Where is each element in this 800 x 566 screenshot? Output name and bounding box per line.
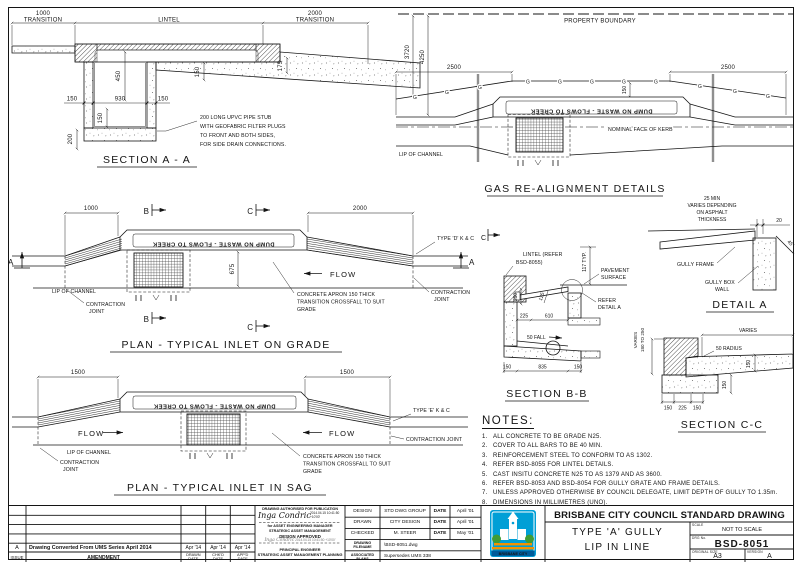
radius-label: 50 RADIUS: [716, 346, 743, 352]
dim-150-left: 150: [503, 365, 512, 371]
outlet-pipe-top: [568, 318, 600, 325]
drawing-sheet: 1000 TRANSITION LINTEL 2000 TRANSITION 4…: [0, 0, 800, 566]
svg-text:JOINT: JOINT: [63, 467, 79, 473]
section-marker-c: C: [481, 235, 486, 242]
note-item: 6.REFER BSD-8053 AND BSD-8054 FOR GULLY …: [482, 480, 732, 489]
section-marker-c-bottom: C: [247, 323, 253, 332]
gully-box-wall-label: GULLY BOX: [705, 280, 735, 286]
logo-text: BRISBANE CITY: [499, 552, 528, 556]
svg-text:G: G: [622, 80, 626, 86]
plan-on-grade-drawing: 1000 2000 B C B C A A DUMP NO WASTE - FL…: [8, 204, 475, 352]
svg-text:WALL: WALL: [715, 287, 729, 293]
drg-no-value: BSD-8051: [690, 539, 794, 550]
note-item: 5.CAST INSITU CONCRETE N25 TO AS 1379 AN…: [482, 471, 732, 480]
dim-225: 225: [520, 314, 529, 320]
for-role-line2: STRATEGIC ASSET MANAGEMENT: [255, 529, 345, 533]
dim-150-floor: 150: [98, 112, 104, 123]
property-boundary-label: PROPERTY BOUNDARY: [564, 19, 636, 25]
note-item: 7.UNLESS APPROVED OTHERWISE BY COUNCIL D…: [482, 489, 732, 498]
plan-on-grade-title: PLAN - TYPICAL INLET ON GRADE: [121, 339, 330, 351]
checked-value: M. STEER: [380, 531, 430, 536]
lip-of-channel-label: LIP OF CHANNEL: [67, 450, 111, 456]
appd-date-header: APP'DDATE: [230, 553, 255, 562]
fall-label: 50 FALL: [527, 335, 546, 341]
dim-varies-left: VARIES: [633, 332, 638, 349]
filename-label: DRAWINGFILENAME: [345, 541, 380, 549]
section-marker-c-top: C: [247, 207, 253, 216]
lintel-refer-label: LINTEL (REFER: [523, 252, 563, 258]
dump-no-waste-text: DUMP NO WASTE - FLOWS TO CREEK: [152, 241, 274, 247]
drawn-value: CITY DESIGN: [380, 520, 430, 525]
amendment-appd-date: Apr '14: [230, 545, 255, 551]
drawn-label: DRAWN: [345, 520, 380, 525]
principal-engineer-label: PRINCIPAL ENGINEER: [255, 548, 345, 552]
dim-2000: 2000: [353, 206, 368, 212]
dim-175: 175: [278, 60, 284, 71]
design-value: STD DWG GROUP: [380, 509, 430, 514]
svg-text:ON ASPHALT: ON ASPHALT: [696, 210, 727, 216]
dim-675: 675: [230, 263, 236, 274]
chkd-date-header: CHK'DDATE: [206, 553, 231, 562]
dim-1000: 1000: [36, 11, 51, 17]
svg-text:G: G: [478, 85, 482, 91]
design-label: DESIGN: [345, 509, 380, 514]
note-item: 4.REFER BSD-8055 FOR LINTEL DETAILS.: [482, 461, 732, 470]
title-block: A Drawing Converted From UMS Series Apri…: [8, 505, 794, 561]
transition-crossfall-lines-right: [307, 239, 413, 266]
notes-title: NOTES:: [482, 415, 534, 429]
svg-text:G: G: [698, 84, 702, 90]
gully-grate-plan: [134, 253, 183, 287]
gas-realignment-drawing: PROPERTY BOUNDARY 3720 4250 2500 2500 G …: [396, 14, 793, 196]
gully-grate-plan: [516, 118, 563, 152]
pipe-stub-note: 200 LONG UPVC PIPE STUB: [200, 115, 272, 121]
flow-label-left: FLOW: [78, 429, 104, 438]
gully-base: [504, 346, 581, 361]
pavement-left: [12, 46, 75, 53]
asphalt-note: 25 MIN: [704, 196, 721, 202]
nominal-face-of-kerb-label: NOMINAL FACE OF KERB: [608, 127, 673, 133]
svg-text:TO FRONT AND BOTH SIDES,: TO FRONT AND BOTH SIDES,: [200, 133, 275, 139]
filename-value: \BSD-8051.dwg: [384, 543, 418, 548]
svg-text:G: G: [766, 94, 770, 100]
gully-wall-left: [504, 302, 517, 346]
contraction-joint-label-right: CONTRACTION: [431, 290, 470, 296]
amendment-drawn-date: Apr '14: [181, 545, 206, 551]
drawing-title-line2: LIP IN LINE: [545, 542, 690, 553]
apron-section: [686, 354, 793, 377]
svg-text:JOINT: JOINT: [434, 297, 450, 303]
dim-150-apron: 150: [746, 360, 752, 369]
council-logo: BRISBANE CITY: [481, 506, 545, 562]
associated-plans-value: Supersedes UMS 338: [384, 554, 431, 559]
dim-varies-top: VARIES: [739, 328, 758, 334]
gully-box-wall-section: [753, 238, 776, 290]
dim-150-right: 150: [574, 365, 583, 371]
associated-plans-label: ASSOCIATEDPLANS: [345, 553, 380, 561]
outlet-pipe-bottom: [581, 351, 600, 358]
dim-1500-left: 1500: [71, 370, 86, 376]
detail-a-drawing: 25 MIN VARIES DEPENDING ON ASPHALT THICK…: [648, 196, 795, 312]
transition-crossfall-lines-left: [65, 239, 122, 266]
dim-4250: 4250: [420, 49, 426, 64]
type-e-kc-label: TYPE 'E' K & C: [413, 408, 450, 414]
svg-text:G: G: [445, 90, 449, 96]
contraction-joint-label-left: CONTRACTION: [86, 302, 125, 308]
detail-a-title: DETAIL A: [712, 299, 767, 311]
label-lintel: LINTEL: [158, 18, 180, 24]
svg-text:G: G: [590, 80, 594, 86]
drawing-title-line1: TYPE 'A' GULLY: [545, 527, 690, 538]
concrete-apron-note: CONCRETE APRON 150 THICK: [297, 292, 376, 298]
svg-text:TRANSITION CROSSFALL TO SUIT: TRANSITION CROSSFALL TO SUIT: [297, 300, 385, 306]
svg-text:G: G: [654, 80, 658, 86]
pavement-surface-label: PAVEMENT: [601, 268, 630, 274]
clock-icon: [512, 522, 515, 525]
gully-wall-right: [147, 62, 156, 128]
tree-icon: [492, 535, 501, 544]
dim-20: 20: [776, 218, 782, 224]
svg-text:JOINT: JOINT: [89, 309, 105, 315]
for-role-line1: for ASSET ENGINEERING MANAGER: [255, 524, 345, 528]
notes-block: NOTES: 1.ALL CONCRETE TO BE GRADE N25. 2…: [482, 411, 732, 508]
amendment-issue-value: A: [8, 545, 26, 551]
org-title: BRISBANE CITY COUNCIL STANDARD DRAWING: [545, 510, 794, 521]
label-transition-right: TRANSITION: [296, 18, 334, 24]
dim-1500-right: 1500: [340, 370, 355, 376]
dump-no-waste-text: DUMP NO WASTE - FLOWS TO CREEK: [153, 403, 275, 409]
dim-2500-left: 2500: [447, 65, 462, 71]
flow-label-right: FLOW: [329, 429, 355, 438]
gully-floor: [84, 128, 156, 141]
dump-no-waste-text: DUMP NO WASTE - FLOWS TO CREEK: [530, 108, 652, 114]
label-transition-left: TRANSITION: [24, 18, 62, 24]
dim-450: 450: [116, 70, 122, 81]
dim-150-wall-left: 150: [67, 97, 78, 103]
contraction-joint-label-right: CONTRACTION JOINT: [406, 437, 463, 443]
lip-of-channel-label: LIP OF CHANNEL: [52, 289, 96, 295]
svg-text:G: G: [733, 89, 737, 95]
drawn-date-header: DRAWNDATE: [181, 553, 206, 562]
svg-text:GRADE: GRADE: [303, 469, 322, 475]
kerb-base: [662, 375, 718, 393]
section-marker-b-top: B: [144, 207, 149, 216]
note-item: 3.REINFORCEMENT STEEL TO CONFORM TO AS 1…: [482, 452, 732, 461]
dim-150-gas: 150: [622, 86, 628, 95]
dim-2000: 2000: [308, 11, 323, 17]
svg-text:VARIES DEPENDING: VARIES DEPENDING: [687, 203, 736, 209]
gully-frame-label: GULLY FRAME: [677, 262, 715, 268]
signature-name: Inga Condric: [258, 511, 311, 520]
dim-150-base: 150: [722, 381, 728, 390]
lip-of-channel-label: LIP OF CHANNEL: [399, 152, 443, 158]
note-item: 1.ALL CONCRETE TO BE GRADE N25.: [482, 433, 732, 442]
tree-icon: [525, 535, 534, 544]
svg-text:DETAIL A: DETAIL A: [598, 305, 621, 311]
dim-3720: 3720: [405, 44, 411, 59]
svg-text:FOR SIDE DRAIN CONNECTIONS.: FOR SIDE DRAIN CONNECTIONS.: [200, 142, 286, 148]
dim-200: 200: [68, 133, 74, 144]
svg-text:BSD-8055): BSD-8055): [516, 260, 543, 266]
dim-117-typ: 117 TYP.: [582, 252, 588, 272]
dim-150-wall-right: 150: [158, 97, 169, 103]
section-b-b-drawing: C 117 TYP. 250 125 225 610 50 FALL 150 8…: [481, 229, 630, 401]
type-d-kc-label: TYPE 'D' K & C: [437, 236, 474, 242]
svg-text:G: G: [526, 80, 530, 86]
svg-text:G: G: [558, 80, 562, 86]
gas-realignment-title: GAS RE-ALIGNMENT DETAILS: [484, 183, 665, 195]
amendment-chkd-date: Apr '14: [206, 545, 231, 551]
transition-crossfall-lines-left: [38, 401, 120, 425]
amendment-header: AMENDMENT: [26, 555, 181, 561]
section-marker-b-bottom: B: [144, 315, 149, 324]
gully-frame-section: [660, 231, 755, 249]
dim-930: 930: [115, 97, 126, 103]
dim-1000: 1000: [84, 206, 99, 212]
plan-in-sag-drawing: 1500 1500 DUMP NO WASTE - FLOWS TO CREEK…: [12, 370, 468, 495]
svg-text:180 TO 250: 180 TO 250: [640, 328, 645, 353]
concrete-apron-note: CONCRETE APRON 150 THICK: [303, 454, 382, 460]
amendment-text: Drawing Converted From UMS Series April …: [29, 545, 152, 551]
dim-835: 835: [538, 365, 547, 371]
signature-timestamp: 2014.04.15 10:41:50+10'00': [310, 512, 339, 519]
original-size-value: A3: [690, 553, 745, 560]
drawn-date: April '01: [450, 520, 481, 525]
svg-text:GRADE: GRADE: [297, 307, 316, 313]
scale-value: NOT TO SCALE: [690, 527, 794, 533]
dim-2500-right: 2500: [721, 65, 736, 71]
gully-grate-plan: [187, 414, 240, 445]
issue-header: ISSUE: [8, 555, 26, 560]
section-marker-a-right: A: [469, 258, 475, 267]
svg-text:SURFACE: SURFACE: [601, 275, 627, 281]
checked-date: May '01: [450, 531, 481, 536]
plan-in-sag-title: PLAN - TYPICAL INLET IN SAG: [127, 482, 313, 494]
sam-planning-label: STRATEGIC ASSET MANAGEMENT PLANNING: [255, 553, 345, 557]
transition-crossfall-lines-right: [308, 401, 390, 425]
gully-wall-left: [84, 62, 93, 128]
design-approved-signature: Inga Condric 2014.04.15 10:41:50 +10'00': [255, 538, 345, 543]
dim-610: 610: [545, 314, 554, 320]
svg-text:G: G: [413, 95, 417, 101]
section-a-a-drawing: 1000 TRANSITION LINTEL 2000 TRANSITION 4…: [12, 11, 420, 167]
gully-wall-right: [568, 293, 581, 318]
checked-label: CHECKED: [345, 531, 380, 536]
version-value: A: [745, 553, 794, 560]
svg-text:WITH GEOFABRIC FILTER PLUGS: WITH GEOFABRIC FILTER PLUGS: [200, 124, 286, 130]
notes-list: 1.ALL CONCRETE TO BE GRADE N25. 2.COVER …: [482, 433, 732, 508]
svg-text:TRANSITION CROSSFALL TO SUIT: TRANSITION CROSSFALL TO SUIT: [303, 462, 391, 468]
dim-150-slab: 150: [195, 66, 201, 77]
section-a-a-title: SECTION A - A: [103, 154, 191, 166]
note-item: 2.COVER TO ALL BARS TO BE 40 MIN.: [482, 442, 732, 451]
contraction-joint-label-left: CONTRACTION: [60, 460, 99, 466]
design-date: April '01: [450, 509, 481, 514]
section-b-b-title: SECTION B-B: [506, 388, 587, 400]
refer-detail-a-label: REFER: [598, 298, 616, 304]
svg-text:THICKNESS: THICKNESS: [698, 217, 727, 223]
flow-label: FLOW: [330, 270, 356, 279]
dim-250: 250: [513, 293, 519, 302]
